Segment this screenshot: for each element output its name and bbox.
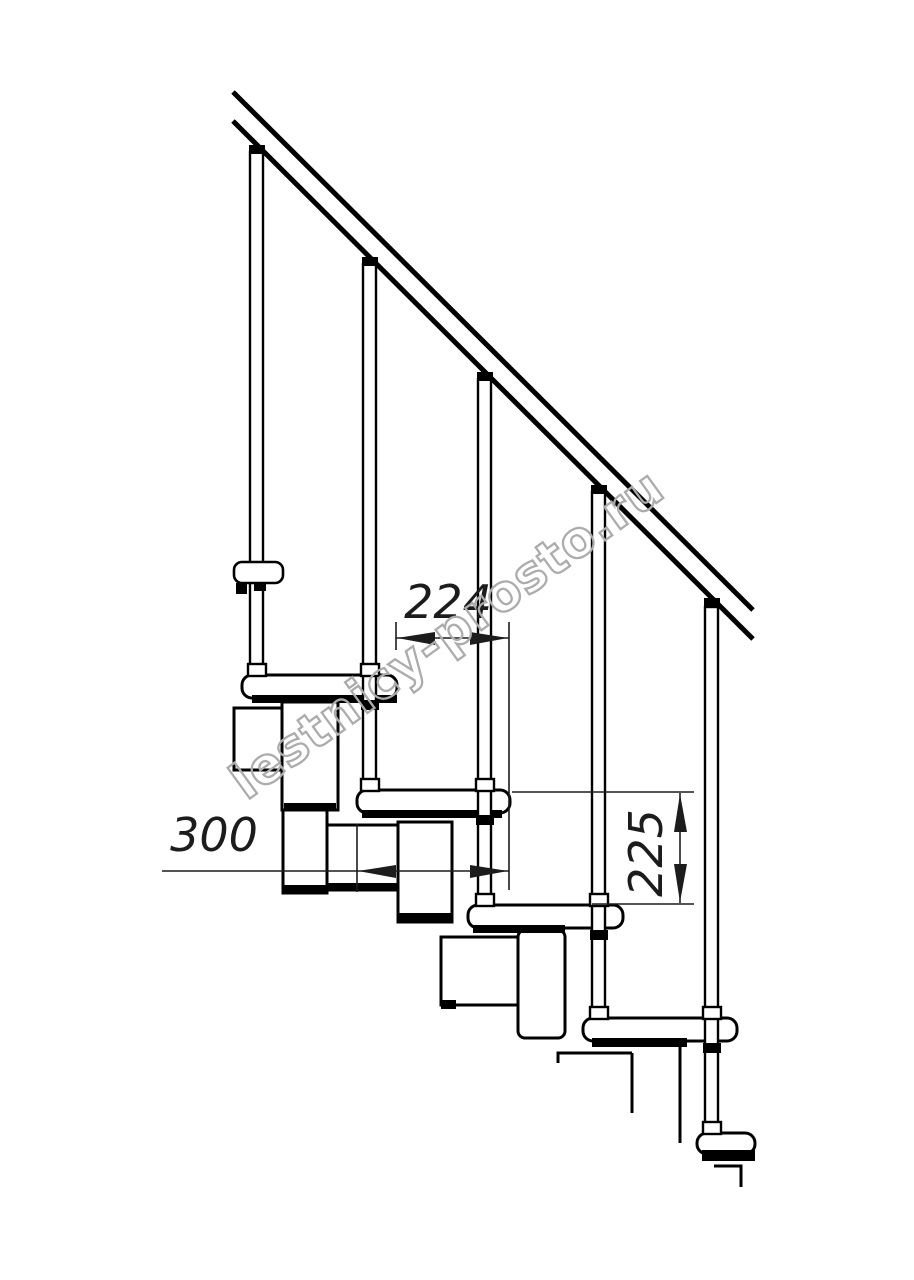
dimension-arrow-up — [674, 794, 687, 832]
coupling-collar — [703, 1007, 721, 1019]
staircase-technical-drawing: 224300225lestnicy-prosto.ru — [0, 0, 914, 1280]
staircase-drawing-svg: 224300225lestnicy-prosto.ru — [0, 0, 914, 1280]
dimension-label-225: 225 — [619, 809, 673, 897]
watermark-text: lestnicy-prosto.ru — [219, 458, 674, 811]
baluster-1 — [250, 152, 263, 675]
spine-box-5-outline — [714, 1166, 741, 1187]
coupling-collar — [476, 894, 494, 906]
tread-underline — [473, 925, 565, 933]
spine-connector-3 — [518, 930, 565, 1038]
coupling-collar — [703, 1122, 721, 1134]
bracket-foot — [254, 583, 266, 591]
tread-underline — [592, 1038, 687, 1047]
spine-connector-2 — [398, 822, 452, 922]
spine-box-3 — [441, 937, 518, 1005]
tread-bracket — [234, 562, 283, 583]
spine-bottom-bar — [399, 913, 451, 922]
tread-underline — [702, 1150, 755, 1161]
spine-connector-1-lower — [283, 810, 327, 893]
baluster-stub — [590, 930, 608, 940]
handrail-bottom-line — [233, 121, 753, 639]
dimension-arrow-down — [674, 864, 687, 902]
spine-bottom-bar — [284, 885, 326, 893]
bracket-foot — [236, 583, 247, 594]
coupling-collar — [476, 779, 494, 791]
baluster-stub — [703, 1043, 721, 1053]
coupling-collar — [361, 779, 379, 791]
spine-bottom-bar — [441, 1000, 456, 1009]
coupling-collar — [590, 1007, 608, 1019]
spine-box-4-outline — [558, 1053, 632, 1063]
spine-box-2 — [327, 825, 403, 890]
dimension-label-300: 300 — [170, 808, 258, 862]
coupling-collar — [248, 664, 266, 676]
handrail-top-line — [233, 92, 753, 610]
spine-bottom-bar — [328, 883, 402, 890]
baluster-stub — [476, 815, 494, 825]
